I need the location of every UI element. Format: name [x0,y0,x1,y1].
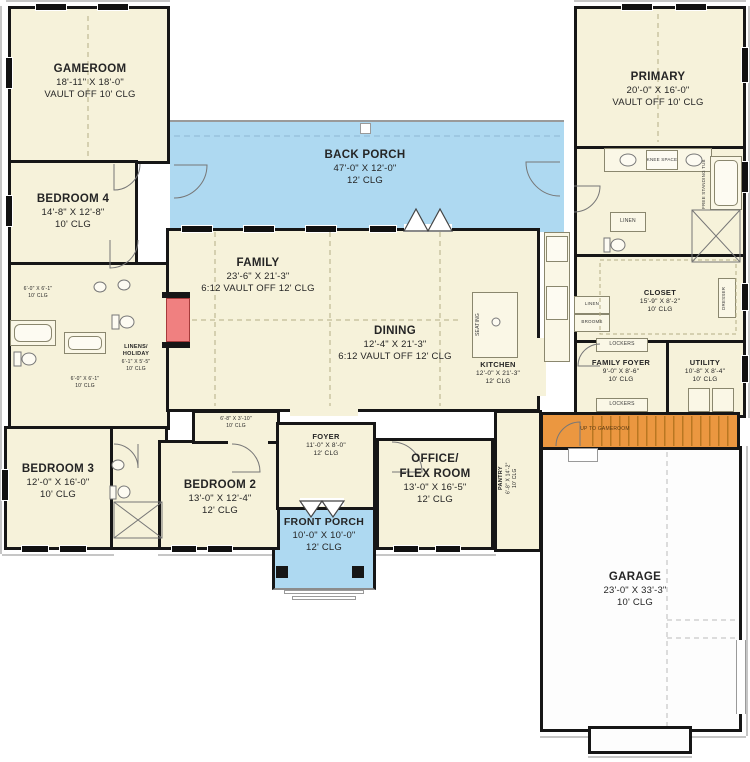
window [60,546,86,552]
room-ceiling: 6:12 VAULT OFF 12' CLG [193,283,323,295]
room-ceiling: 12' CLG [288,450,364,458]
room-ceiling: 12' CLG [278,542,370,554]
room-name: FAMILY FOYER [578,358,664,368]
garage-bump [588,726,692,754]
label-bath-b: 6'-0" X 6'-1" 10' CLG [58,376,112,390]
roofline [158,554,280,556]
window [172,546,196,552]
room-name: BEDROOM 3 [6,462,110,477]
room-name: KITCHEN [456,360,540,370]
room-dims: 12'-0" X 16'-0" [6,477,110,489]
label-primary: PRIMARY 20'-0" X 16'-0" VAULT OFF 10' CL… [588,70,728,110]
linen-bath-label: LINEN [612,219,644,224]
label-back-porch: BACK PORCH 47'-0" X 12'-0" 12' CLG [298,148,432,188]
room-name: LINENS/ [110,344,162,351]
room-ceiling: 10' CLG [608,306,712,314]
window [742,162,748,192]
window [742,284,748,310]
range [546,286,568,320]
knee-space-label: KNEE SPACE [644,158,680,163]
label-front-porch: FRONT PORCH 10'-0" X 10'-0" 12' CLG [278,516,370,554]
room-ceiling: 10' CLG [58,383,112,390]
room-dims: 23'-6" X 21'-3" [193,271,323,283]
label-utility: UTILITY 10'-8" X 8'-4" 10' CLG [668,358,742,385]
floor-plan: GAMEROOM 18'-11" X 18'-0" VAULT OFF 10' … [0,0,750,762]
label-dining: DINING 12'-4" X 21'-3" 6:12 VAULT OFF 12… [322,324,468,364]
room-ceiling: 12' CLG [298,175,432,187]
room-dims: 12'-4" X 21'-3" [322,339,468,351]
room-dims: 47'-0" X 12'-0" [298,163,432,175]
lockers-label: LOCKERS [598,402,646,407]
room-dims: 15'-9" X 8'-2" [608,298,712,306]
label-garage: GARAGE 23'-0" X 33'-3" 10' CLG [565,570,705,610]
room-name: FLEX ROOM [380,467,490,482]
room-ceiling: VAULT OFF 10' CLG [20,89,160,101]
room-ceiling: 10' CLG [110,366,162,373]
porch-step [284,590,364,594]
label-bedroom3: BEDROOM 3 12'-0" X 16'-0" 10' CLG [6,462,110,502]
room-dims: 6'-0" X 6'-1" [58,376,112,383]
room-name: BEDROOM 2 [162,478,278,493]
room-name: GAMEROOM [20,62,160,77]
foyer-opening [290,406,358,416]
room-dims: 9'-0" X 8'-6" [578,368,664,376]
room-name: GARAGE [565,570,705,585]
room-ceiling: VAULT OFF 10' CLG [588,97,728,109]
porch-column [276,566,288,578]
freestanding-tub-label: FREE STANDING TUB [702,158,707,210]
room-ceiling: 12' CLG [456,378,540,386]
fireplace [166,298,190,342]
dryer [712,388,734,412]
room-ceiling: 10' CLG [12,293,64,300]
room-ceiling: 6:12 VAULT OFF 12' CLG [322,351,468,363]
room-ceiling: 10' CLG [200,423,272,430]
label-foyer: FOYER 11'-0" X 8'-0" 12' CLG [288,432,364,459]
room-ceiling: 10' CLG [512,438,519,518]
label-linens-holiday: LINENS/ HOLIDAY 6'-1" X 5'-5" 10' CLG [110,344,162,372]
label-family: FAMILY 23'-6" X 21'-3" 6:12 VAULT OFF 12… [193,256,323,296]
room-dims: 13'-0" X 16'-5" [380,482,490,494]
roofline [376,554,496,556]
room-ceiling: 10' CLG [668,376,742,384]
refrigerator [546,236,568,262]
label-family-foyer: FAMILY FOYER 9'-0" X 8'-6" 10' CLG [578,358,664,385]
label-bed2-closet: 6'-8" X 3'-10" 10' CLG [200,416,272,430]
roofline [6,0,170,2]
window [36,4,66,10]
label-closet: CLOSET 15'-9" X 8'-2" 10' CLG [608,288,712,315]
room-ceiling: 12' CLG [162,505,278,517]
room-ceiling: 10' CLG [6,489,110,501]
room-name: PRIMARY [588,70,728,85]
label-gameroom: GAMEROOM 18'-11" X 18'-0" VAULT OFF 10' … [20,62,160,102]
porch-post [360,123,371,134]
roofline [746,446,748,736]
window [182,226,212,232]
window [436,546,460,552]
seating-label: SEATING [476,300,481,350]
window [370,226,396,232]
room-dims: 18'-11" X 18'-0" [20,77,160,89]
window [22,546,48,552]
room-dims: 6'-8" X 14'-2" [505,438,512,518]
window [98,4,128,10]
roofline [588,756,692,758]
room-dims: 20'-0" X 16'-0" [588,85,728,97]
window [244,226,274,232]
room-name: DINING [322,324,468,339]
room-ceiling: 12' CLG [380,494,490,506]
room-dims: 6'-0" X 6'-1" [12,286,64,293]
window [6,58,12,88]
room-dims: 14'-8" X 12'-8" [12,207,134,219]
window [742,356,748,382]
room-dims: 6'-1" X 5'-5" [110,359,162,366]
tub-basin [68,336,102,350]
room-name: UTILITY [668,358,742,368]
room-dims: 10'-8" X 8'-4" [668,368,742,376]
room-dims: 6'-8" X 3'-10" [200,416,272,423]
fireplace-stub [162,342,190,348]
room-name: OFFICE/ [380,452,490,467]
label-bath-a: 6'-0" X 6'-1" 10' CLG [12,286,64,300]
window [394,546,418,552]
roofline [2,554,114,556]
stair-landing-step [568,448,598,462]
room-dims: 11'-0" X 8'-0" [288,442,364,450]
window [676,4,706,10]
bed2-closet-opening [228,438,268,446]
room-ceiling: 10' CLG [578,376,664,384]
dresser-label: DRESSER [722,282,727,314]
tub-basin [714,160,738,206]
room-name: HOLIDAY [110,351,162,358]
room-ceiling: 10' CLG [12,219,134,231]
room-dims: 23'-0" X 33'-3" [565,585,705,597]
label-kitchen: KITCHEN 12'-0" X 21'-3" 12' CLG [456,360,540,387]
room-name: BACK PORCH [298,148,432,163]
stairs-label: UP TO GAMEROOM [560,427,650,432]
label-office: OFFICE/ FLEX ROOM 13'-0" X 16'-5" 12' CL… [380,452,490,507]
window [622,4,652,10]
room-name: BEDROOM 4 [12,192,134,207]
room-name: PANTRY [498,438,505,518]
room-name: FAMILY [193,256,323,271]
room-ceiling: 10' CLG [565,597,705,609]
room-name: CLOSET [608,288,712,298]
window [742,48,748,82]
label-bedroom2: BEDROOM 2 13'-0" X 12'-4" 12' CLG [162,478,278,518]
linen-hall-label: LINEN [576,302,608,307]
window [208,546,232,552]
porch-column [352,566,364,578]
label-pantry: PANTRY 6'-8" X 14'-2" 10' CLG [498,438,519,518]
window [306,226,336,232]
porch-step [292,596,356,600]
room-name: FOYER [288,432,364,442]
room-dims: 10'-0" X 10'-0" [278,530,370,542]
garage-door-opening [736,640,746,714]
lockers-label: LOCKERS [598,342,646,347]
room-dims: 13'-0" X 12'-4" [162,493,278,505]
roofline [574,0,746,2]
label-bedroom4: BEDROOM 4 14'-8" X 12'-8" 10' CLG [12,192,134,232]
tub-basin [14,324,52,342]
brooms-label: BROOMS [576,320,608,325]
room-name: FRONT PORCH [278,516,370,530]
room-dims: 12'-0" X 21'-3" [456,370,540,378]
washer [688,388,710,412]
